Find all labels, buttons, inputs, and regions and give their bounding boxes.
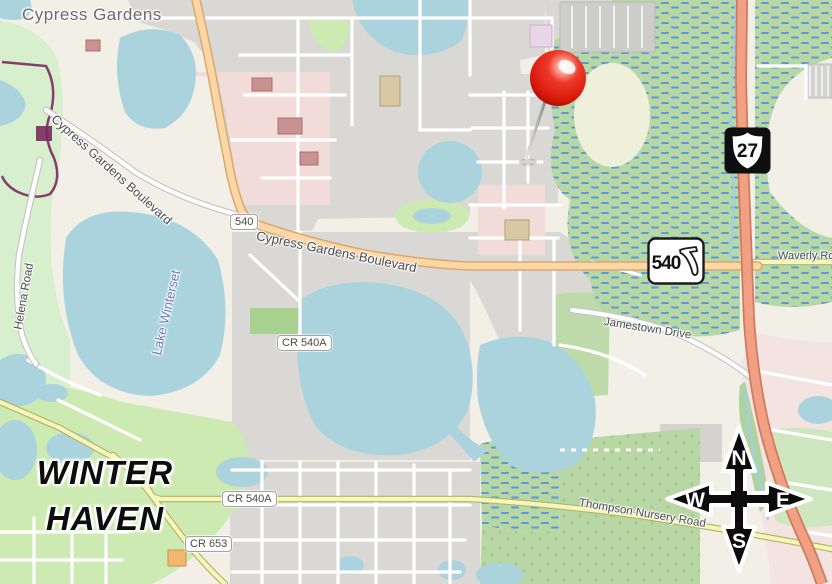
fl-540-shield-number: 540 [652, 253, 681, 274]
compass-rose-icon: N S W E [659, 419, 819, 584]
compass-south-label: S [732, 530, 746, 553]
fl-540-shield-icon: 540 [647, 237, 705, 290]
compass-west-label: W [685, 489, 705, 512]
map-pin-icon[interactable] [500, 26, 620, 181]
route-badge-cr540a-mid: CR 540A [277, 335, 332, 351]
map-canvas[interactable]: Cypress Gardens Cypress Gardens Boulevar… [0, 0, 832, 584]
compass-east-label: E [776, 489, 790, 512]
us-27-shield-number: 27 [737, 141, 758, 162]
route-badge-cr540a: CR 540A [222, 491, 277, 507]
route-badge-540: 540 [230, 214, 258, 230]
route-badge-cr653: CR 653 [185, 536, 232, 552]
us-27-shield-icon: 27 [724, 127, 771, 179]
compass-north-label: N [731, 447, 746, 470]
